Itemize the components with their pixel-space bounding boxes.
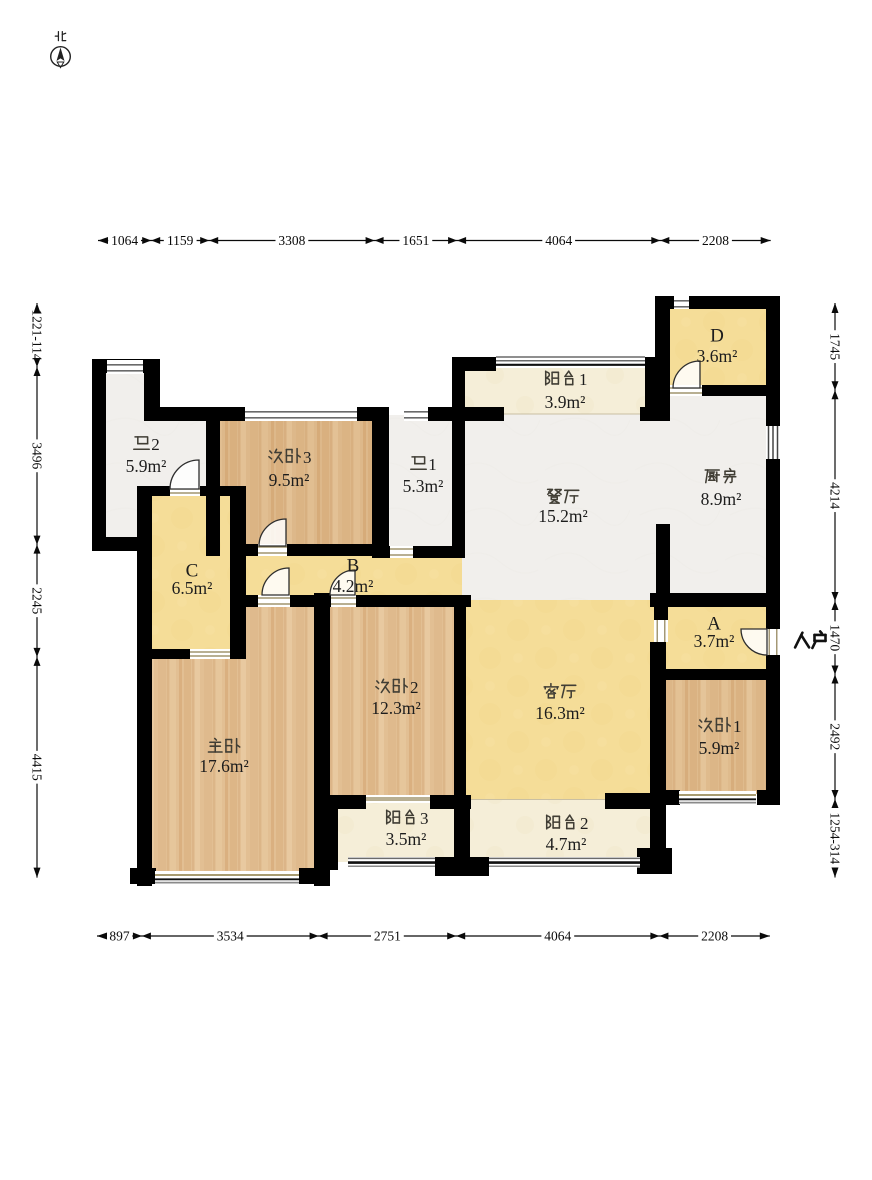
svg-text:3.7m²: 3.7m² bbox=[694, 631, 735, 651]
svg-text:17.6m²: 17.6m² bbox=[199, 756, 248, 776]
svg-text:1159: 1159 bbox=[167, 233, 194, 248]
svg-text:12.3m²: 12.3m² bbox=[371, 698, 420, 718]
svg-text:3534: 3534 bbox=[217, 929, 244, 944]
svg-text:1254-314: 1254-314 bbox=[828, 812, 843, 864]
svg-text:2208: 2208 bbox=[701, 929, 728, 944]
svg-text:2245: 2245 bbox=[30, 587, 45, 614]
svg-text:1745: 1745 bbox=[828, 333, 843, 360]
svg-text:3: 3 bbox=[303, 448, 312, 467]
svg-text:1064: 1064 bbox=[111, 233, 138, 248]
svg-text:2492: 2492 bbox=[828, 723, 843, 750]
svg-text:3.6m²: 3.6m² bbox=[697, 346, 738, 366]
svg-text:16.3m²: 16.3m² bbox=[535, 703, 584, 723]
svg-text:2208: 2208 bbox=[702, 233, 729, 248]
svg-text:1: 1 bbox=[579, 370, 588, 389]
svg-text:4.2m²: 4.2m² bbox=[333, 576, 374, 596]
svg-text:1470: 1470 bbox=[828, 624, 843, 651]
svg-text:3308: 3308 bbox=[278, 233, 305, 248]
svg-text:1: 1 bbox=[733, 717, 742, 736]
svg-text:3.5m²: 3.5m² bbox=[386, 829, 427, 849]
svg-text:1651: 1651 bbox=[402, 233, 429, 248]
svg-text:15.2m²: 15.2m² bbox=[538, 506, 587, 526]
svg-text:3: 3 bbox=[420, 809, 429, 828]
svg-text:5.9m²: 5.9m² bbox=[126, 456, 167, 476]
svg-text:2: 2 bbox=[580, 814, 589, 833]
svg-text:1221-114: 1221-114 bbox=[30, 309, 45, 360]
svg-text:897: 897 bbox=[109, 929, 130, 944]
svg-text:2: 2 bbox=[410, 678, 419, 697]
svg-text:4.7m²: 4.7m² bbox=[546, 834, 587, 854]
svg-text:5.9m²: 5.9m² bbox=[699, 738, 740, 758]
svg-text:B: B bbox=[347, 556, 360, 577]
svg-text:4064: 4064 bbox=[544, 929, 571, 944]
svg-text:4415: 4415 bbox=[30, 754, 45, 781]
svg-text:D: D bbox=[710, 326, 724, 347]
svg-text:8.9m²: 8.9m² bbox=[701, 489, 742, 509]
svg-text:6.5m²: 6.5m² bbox=[172, 578, 213, 598]
svg-text:3.9m²: 3.9m² bbox=[545, 392, 586, 412]
svg-text:2751: 2751 bbox=[374, 929, 401, 944]
svg-text:4064: 4064 bbox=[545, 233, 572, 248]
svg-text:3496: 3496 bbox=[30, 442, 45, 469]
svg-text:5.3m²: 5.3m² bbox=[403, 476, 444, 496]
svg-text:9.5m²: 9.5m² bbox=[269, 470, 310, 490]
svg-text:1: 1 bbox=[428, 455, 437, 474]
svg-text:4214: 4214 bbox=[828, 482, 843, 509]
svg-text:2: 2 bbox=[151, 435, 160, 454]
